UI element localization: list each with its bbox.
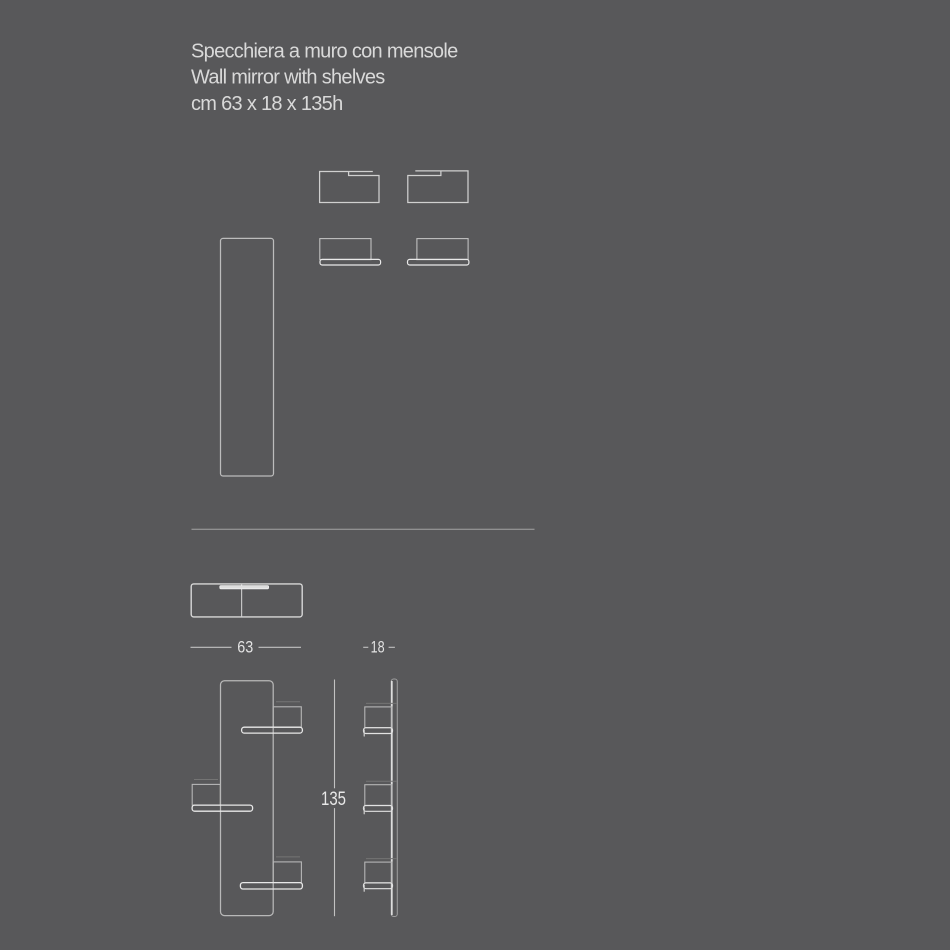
svg-text:18: 18 [371,638,385,657]
svg-text:Specchiera a muro con mensole: Specchiera a muro con mensole [191,41,458,63]
svg-text:135: 135 [321,789,346,810]
svg-text:63: 63 [237,638,253,657]
svg-text:cm 63 x 18 x 135h: cm 63 x 18 x 135h [191,93,343,115]
svg-text:Wall mirror with shelves: Wall mirror with shelves [191,67,385,89]
